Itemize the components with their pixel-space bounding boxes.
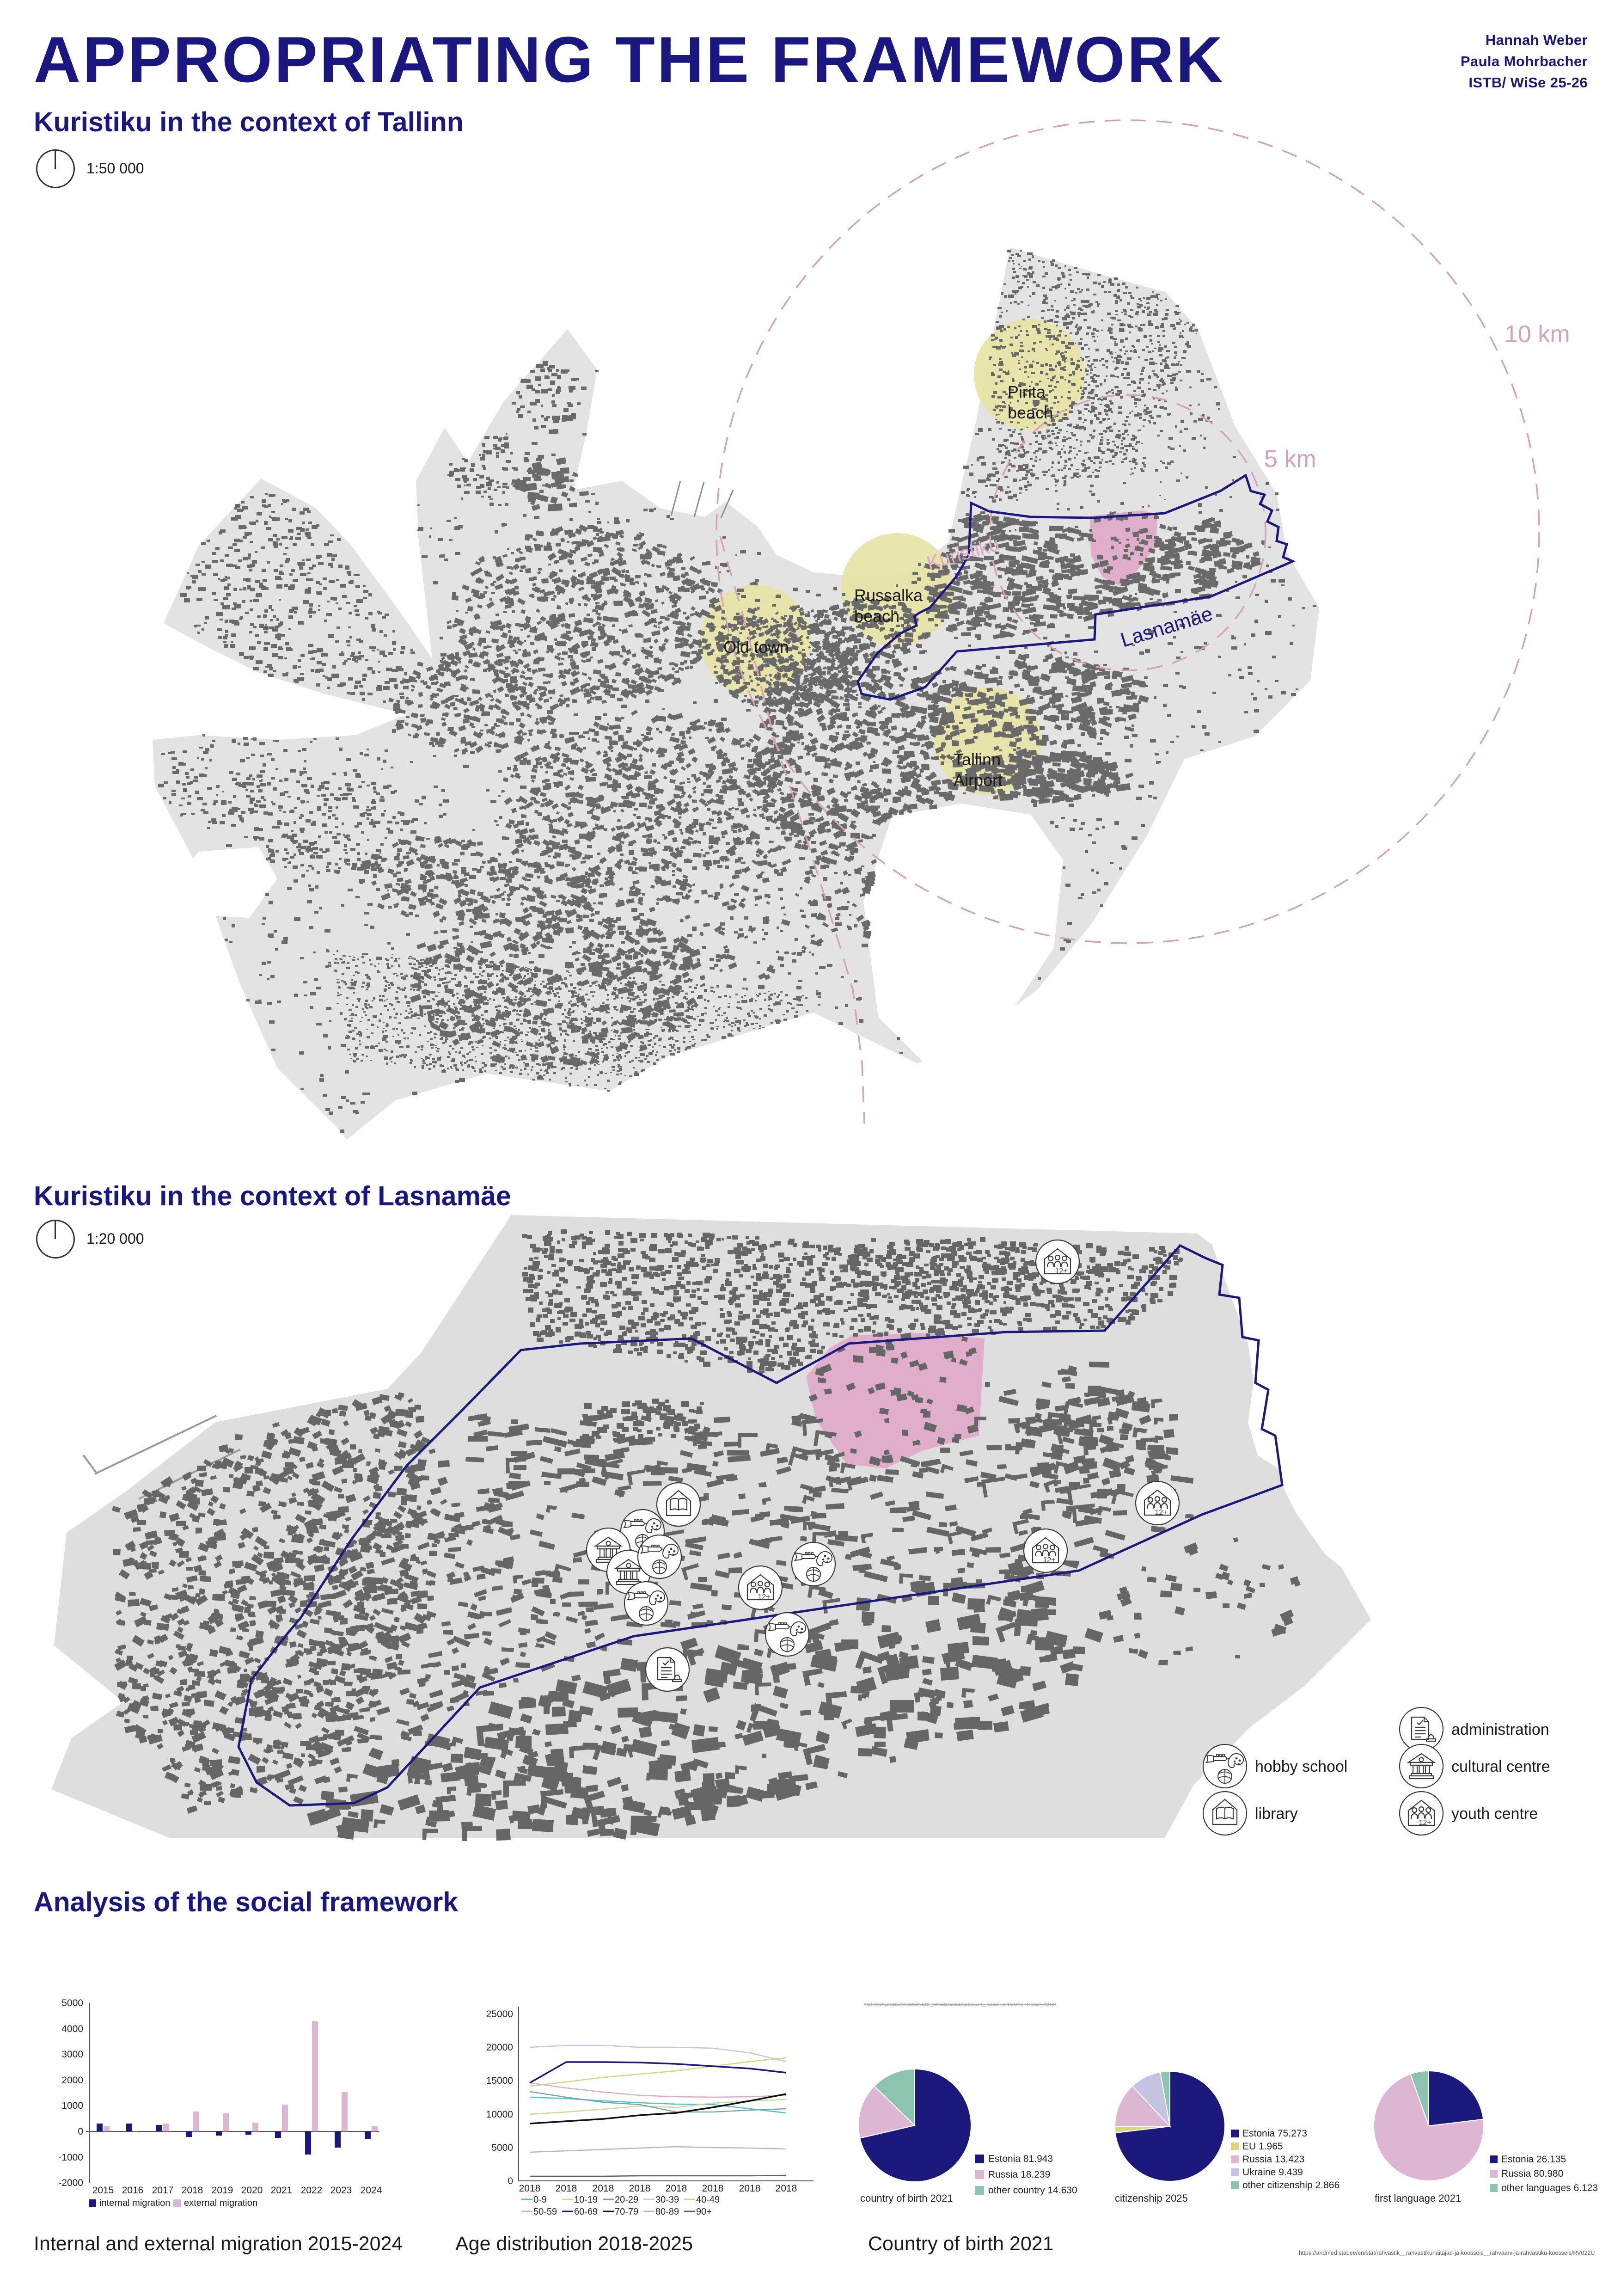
svg-text:0-9: 0-9 — [533, 2195, 547, 2205]
svg-text:library: library — [1255, 1805, 1298, 1823]
svg-text:70-79: 70-79 — [615, 2207, 638, 2217]
svg-text:3000: 3000 — [61, 2049, 83, 2060]
svg-text:80-89: 80-89 — [655, 2207, 679, 2217]
svg-text:2015: 2015 — [92, 2185, 114, 2196]
svg-text:Russia 80.980: Russia 80.980 — [1501, 2168, 1563, 2179]
svg-text:2018: 2018 — [519, 2183, 541, 2194]
svg-text:other citizenship 2.866: other citizenship 2.866 — [1242, 2180, 1340, 2191]
svg-text:EU 1.965: EU 1.965 — [1242, 2141, 1283, 2152]
svg-text:2018: 2018 — [666, 2183, 687, 2194]
svg-text:2018: 2018 — [182, 2185, 203, 2196]
svg-text:25000: 25000 — [486, 2009, 513, 2020]
svg-text:5000: 5000 — [491, 2143, 513, 2153]
svg-text:Tallinn: Tallinn — [954, 750, 1001, 769]
svg-text:Russia 13.423: Russia 13.423 — [1242, 2154, 1304, 2165]
svg-text:0: 0 — [508, 2176, 513, 2186]
svg-text:2018: 2018 — [593, 2183, 614, 2194]
svg-text:5000: 5000 — [61, 1998, 83, 2008]
svg-text:2016: 2016 — [122, 2185, 144, 2196]
svg-text:2023: 2023 — [330, 2185, 352, 2196]
svg-text:15000: 15000 — [486, 2075, 513, 2086]
svg-text:2020: 2020 — [241, 2185, 263, 2196]
svg-text:-2000: -2000 — [58, 2178, 83, 2188]
svg-text:2019: 2019 — [212, 2185, 233, 2196]
svg-text:2018: 2018 — [556, 2183, 577, 2194]
svg-text:-1000: -1000 — [58, 2152, 83, 2163]
svg-text:Pirita: Pirita — [1008, 382, 1046, 401]
svg-text:https://andmed.stat.ee/en/stat: https://andmed.stat.ee/en/stat/rahvastik… — [864, 2002, 1056, 2007]
svg-text:Estonia 81.943: Estonia 81.943 — [988, 2154, 1053, 2164]
svg-text:hobby school: hobby school — [1255, 1758, 1347, 1775]
svg-text:2022: 2022 — [301, 2185, 323, 2196]
svg-text:administration: administration — [1451, 1721, 1549, 1738]
svg-text:2018: 2018 — [629, 2183, 651, 2194]
svg-text:5 km: 5 km — [1264, 446, 1316, 473]
svg-text:20-29: 20-29 — [615, 2195, 638, 2205]
svg-text:10-19: 10-19 — [574, 2195, 598, 2205]
svg-text:0: 0 — [78, 2126, 83, 2137]
svg-text:10000: 10000 — [486, 2109, 513, 2120]
svg-text:country of birth 2021: country of birth 2021 — [860, 2192, 953, 2204]
svg-text:beach: beach — [1008, 403, 1053, 422]
svg-text:Old town: Old town — [723, 638, 789, 657]
svg-text:30-39: 30-39 — [655, 2195, 679, 2205]
svg-text:20000: 20000 — [486, 2042, 513, 2053]
svg-text:internal migration: internal migration — [99, 2198, 170, 2208]
svg-text:Estonia 26.135: Estonia 26.135 — [1501, 2154, 1566, 2165]
svg-text:Estonia 75.273: Estonia 75.273 — [1242, 2128, 1307, 2139]
svg-text:2017: 2017 — [152, 2185, 174, 2196]
svg-text:beach: beach — [854, 607, 899, 626]
svg-text:40-49: 40-49 — [696, 2195, 720, 2205]
svg-text:other country 14.630: other country 14.630 — [988, 2185, 1077, 2196]
svg-text:Russia 18.239: Russia 18.239 — [988, 2169, 1050, 2180]
svg-text:2000: 2000 — [61, 2075, 83, 2086]
svg-text:10 km: 10 km — [1505, 321, 1570, 348]
svg-text:Airport: Airport — [954, 771, 1003, 790]
svg-text:Russalka: Russalka — [854, 586, 923, 605]
svg-text:2018: 2018 — [702, 2183, 724, 2194]
svg-text:youth centre: youth centre — [1451, 1805, 1538, 1823]
svg-text:60-69: 60-69 — [574, 2207, 598, 2217]
svg-text:2018: 2018 — [739, 2183, 761, 2194]
svg-text:first language 2021: first language 2021 — [1375, 2192, 1461, 2204]
svg-text:2021: 2021 — [271, 2185, 293, 2196]
svg-text:90+: 90+ — [696, 2207, 712, 2217]
svg-text:cultural centre: cultural centre — [1451, 1758, 1550, 1775]
svg-text:Ukraine 9.439: Ukraine 9.439 — [1242, 2167, 1303, 2178]
svg-text:citizenship 2025: citizenship 2025 — [1115, 2192, 1188, 2204]
svg-text:other languages 6.123: other languages 6.123 — [1501, 2183, 1598, 2193]
svg-text:2018: 2018 — [776, 2183, 797, 2194]
svg-text:1000: 1000 — [61, 2100, 83, 2111]
svg-text:50-59: 50-59 — [533, 2207, 557, 2217]
svg-text:2024: 2024 — [361, 2185, 382, 2196]
svg-text:4000: 4000 — [61, 2024, 83, 2034]
svg-text:external migration: external migration — [184, 2198, 257, 2208]
